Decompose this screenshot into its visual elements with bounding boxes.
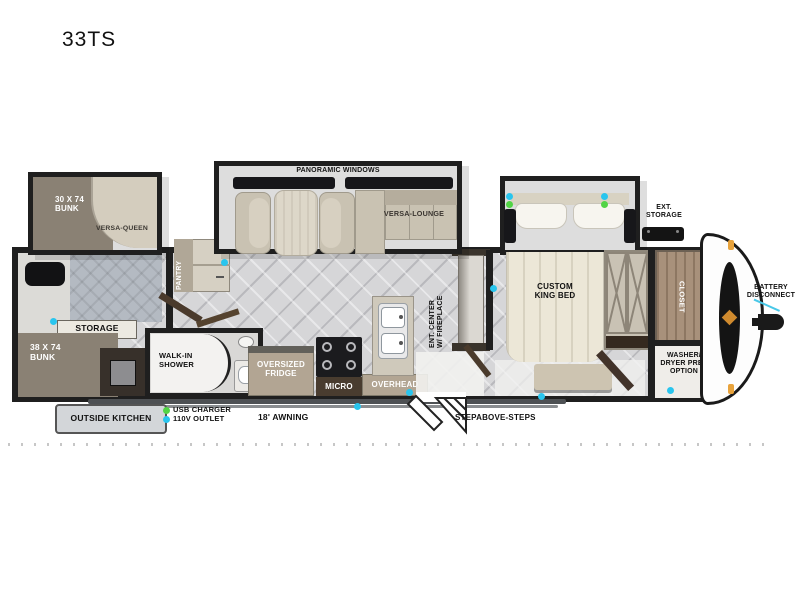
window-band-left [233,177,335,189]
wall-bedroom [486,250,493,350]
bed-pillow-left [515,203,567,229]
bed-window-left [504,209,516,243]
outlet-110v-dot [50,318,57,325]
bed-bench [534,364,612,390]
dinette-chair-right-cushion [321,198,341,248]
floorplan-canvas: 33TS STORAGE 38 X 74 BUNK PANTRY WALK-IN… [0,0,800,600]
page-title: 33TS [62,28,116,52]
bed-pillow-right [573,203,625,229]
custom-king-bed-label: CUSTOM KING BED [506,282,604,300]
ext-storage-bolt-1 [647,230,650,233]
ent-center-label: ENT. CENTER W/ FIREPLACE [429,252,445,348]
bunk-38x74-label: 38 X 74 BUNK [30,343,61,363]
wall-bunkroom [166,250,173,332]
stove-burner-3 [322,360,332,370]
ext-storage-label: EXT. STORAGE [634,204,694,220]
custom-king-bed [506,252,604,362]
versa-lounge-chaise [355,190,385,254]
outlet-110v-dot [506,193,513,200]
outlet-110v-dot [163,416,170,423]
marker-light-top-icon [728,240,734,250]
dinette-table [274,190,318,256]
outlet-110v-dot [538,393,545,400]
awning-label: 18' AWNING [258,413,308,423]
stove-burner-4 [346,360,356,370]
pantry-label: PANTRY [176,241,184,290]
outlet-110v-dot [406,389,413,396]
outlet-110v-dot [601,193,608,200]
outlet-110v-dot [221,259,228,266]
versa-queen-mattress [70,252,162,322]
fridge-top-band [248,346,314,353]
slide-out-main: PANORAMIC WINDOWS VERSA-LOUNGE [214,161,462,254]
micro-label: MICRO [316,382,362,391]
panoramic-windows-label: PANORAMIC WINDOWS [219,167,457,175]
slide-out-bunk: 30 X 74 BUNK VERSA-QUEEN [28,172,162,255]
kitchen-faucet-2 [399,341,403,345]
usb-charger-dot [163,407,170,414]
cropped-text-remnants [8,443,764,446]
bunkroom-tv-screen [110,360,136,386]
window-band-right [345,177,453,189]
closet-label: CLOSET [677,258,686,336]
outlet-110v-dot [490,285,497,292]
trailer-hitch-base [752,318,762,326]
outlet-110v-dot [667,387,674,394]
slide-out-bed [500,176,640,255]
ent-center-cabinet [458,255,484,345]
wardrobe-xdoors-icon [606,252,648,348]
usb-charger-dot [506,201,513,208]
kitchen-faucet-1 [399,315,403,319]
usb-charger-dot [601,201,608,208]
dinette-chair-left-cushion [249,198,269,248]
versa-lounge-label: VERSA-LOUNGE [369,210,459,218]
outlet-110v-label: 110V OUTLET [173,415,224,424]
battery-disconnect-label: BATTERY DISCONNECT [742,284,800,300]
marker-light-bottom-icon [728,384,734,394]
stove-burner-2 [346,342,356,352]
fridge-label: OVERSIZED FRIDGE [248,360,314,378]
outside-kitchen-label: OUTSIDE KITCHEN [55,414,167,424]
stove-burner-1 [322,342,332,352]
versa-lounge-backrest [385,190,457,205]
steps-label: STEPABOVE-STEPS [455,413,536,422]
outlet-110v-dot [354,403,361,410]
versa-queen-label: VERSA-QUEEN [89,225,155,233]
rear-window-icon [25,262,65,286]
walk-in-shower-label: WALK-IN SHOWER [159,352,194,369]
pantry-handle-bottom [216,276,224,278]
wardrobe [604,250,650,350]
ext-storage-bolt-2 [676,230,679,233]
bunk-30x74-label: 30 X 74 BUNK [55,195,84,213]
